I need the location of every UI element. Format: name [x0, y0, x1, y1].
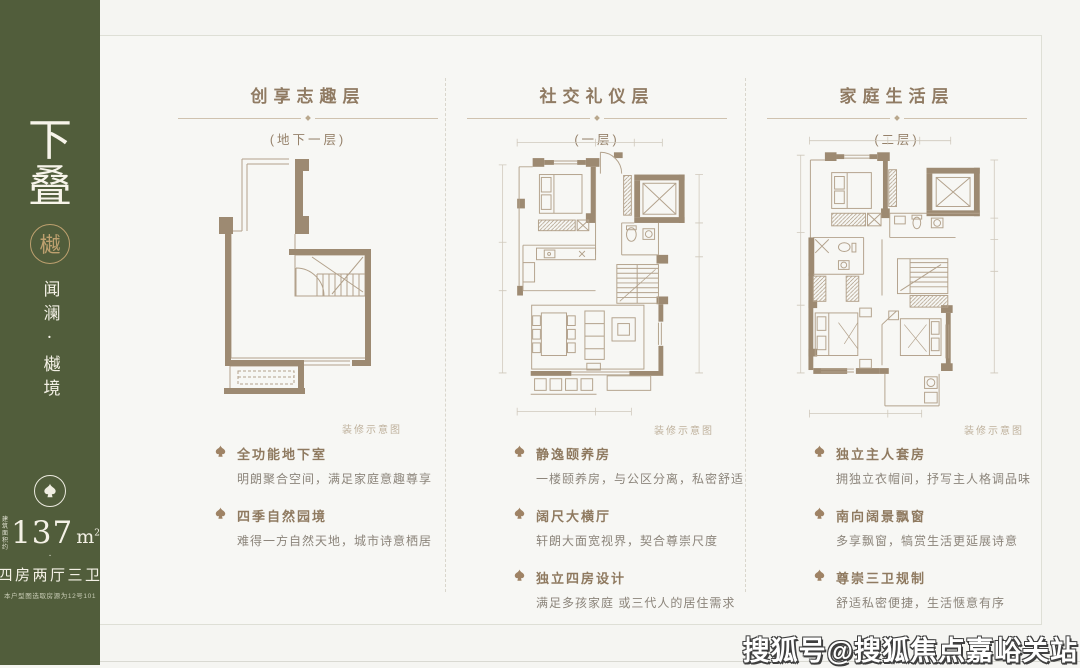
column3-title: 家庭生活层	[767, 82, 1027, 107]
leaf-bullet-icon	[812, 568, 827, 583]
floorplan-level2	[792, 131, 1032, 431]
feature-item: 全功能地下室 明朗聚合空间，满足家庭意趣尊享	[213, 444, 453, 487]
feature-title: 独立主人套房	[836, 444, 1052, 463]
feature-item: 尊崇三卫规制 舒适私密便捷，生活惬意有序	[812, 568, 1052, 611]
area-figure: 建筑 面积约 137 m2	[0, 515, 100, 551]
feature-desc: 舒适私密便捷，生活惬意有序	[836, 594, 1052, 611]
area-prefix: 建筑 面积约	[0, 516, 9, 551]
feature-item: 静逸颐养房 一楼颐养房，与公区分离，私密舒适	[512, 444, 752, 487]
poster-root: 下 叠 樾 闻澜·樾境 建筑 面积约 137 m2 · 四房两厅三卫 本户型图选…	[0, 0, 1080, 665]
leaf-bullet-icon	[812, 444, 827, 459]
feature-item: 独立主人套房 拥独立衣帽间，抒写主人格调品味	[812, 444, 1052, 487]
header-divider	[467, 116, 727, 120]
plan3-caption: 装修示意图	[914, 422, 1024, 437]
feature-desc: 轩朗大面宽视界，契合尊崇尺度	[536, 532, 752, 549]
unit-source-note: 本户型图选取房源为12号101	[4, 590, 96, 600]
floorplan-basement	[192, 136, 432, 436]
product-title-char-2: 叠	[28, 164, 72, 210]
feature-item: 独立四房设计 满足多孩家庭 或三代人的居住需求	[512, 568, 752, 611]
feature-desc: 满足多孩家庭 或三代人的居住需求	[536, 594, 752, 611]
sidebar: 下 叠 樾 闻澜·樾境 建筑 面积约 137 m2 · 四房两厅三卫 本户型图选…	[0, 0, 100, 665]
brand-name: 闻澜·樾境	[38, 280, 63, 403]
leaf-bullet-icon	[213, 444, 228, 459]
feature-title: 阔尺大横厅	[536, 506, 752, 525]
column3-bullets: 独立主人套房 拥独立衣帽间，抒写主人格调品味 南向阔景飘窗 多享飘窗，犒赏生活更…	[812, 444, 1052, 630]
feature-title: 四季自然园境	[237, 506, 453, 525]
header-divider	[178, 116, 438, 120]
header-divider	[767, 116, 1027, 120]
feature-title: 尊崇三卫规制	[836, 568, 1052, 587]
leaf-bullet-icon	[512, 506, 527, 521]
feature-title: 独立四房设计	[536, 568, 752, 587]
brand-seal-icon: 樾	[30, 224, 70, 264]
separator-dot: ·	[48, 552, 51, 560]
watermark-text: 搜狐号@搜狐焦点嘉峪关站	[743, 629, 1078, 668]
leaf-bullet-icon	[512, 444, 527, 459]
room-layout-text: 四房两厅三卫	[0, 564, 103, 585]
leaf-icon	[41, 482, 59, 500]
feature-item: 四季自然园境 难得一方自然天地，城市诗意栖居	[213, 506, 453, 549]
column2-title: 社交礼仪层	[467, 82, 727, 107]
leaf-bullet-icon	[512, 568, 527, 583]
leaf-bullet-icon	[812, 506, 827, 521]
leaf-bullet-icon	[213, 506, 228, 521]
column1-bullets: 全功能地下室 明朗聚合空间，满足家庭意趣尊享 四季自然园境 难得一方自然天地，城…	[213, 444, 453, 568]
feature-item: 阔尺大横厅 轩朗大面宽视界，契合尊崇尺度	[512, 506, 752, 549]
plan2-caption: 装修示意图	[604, 422, 714, 437]
feature-desc: 一楼颐养房，与公区分离，私密舒适	[536, 470, 752, 487]
area-value: 137	[11, 515, 73, 551]
feature-desc: 难得一方自然天地，城市诗意栖居	[237, 532, 453, 549]
product-title: 下 叠	[28, 118, 72, 210]
feature-desc: 多享飘窗，犒赏生活更延展诗意	[836, 532, 1052, 549]
column1-title: 创享志趣层	[178, 82, 438, 107]
feature-title: 静逸颐养房	[536, 444, 752, 463]
feature-item: 南向阔景飘窗 多享飘窗，犒赏生活更延展诗意	[812, 506, 1052, 549]
product-title-char-1: 下	[28, 118, 72, 164]
feature-title: 南向阔景飘窗	[836, 506, 1052, 525]
floorplan-level1	[492, 131, 732, 431]
feature-title: 全功能地下室	[237, 444, 453, 463]
seal-character: 樾	[40, 229, 61, 259]
plan1-caption: 装修示意图	[292, 421, 402, 436]
feature-desc: 拥独立衣帽间，抒写主人格调品味	[836, 470, 1052, 487]
area-unit: m2	[76, 526, 100, 548]
column2-bullets: 静逸颐养房 一楼颐养房，与公区分离，私密舒适 阔尺大横厅 轩朗大面宽视界，契合尊…	[512, 444, 752, 630]
leaf-badge-icon	[34, 475, 66, 507]
feature-desc: 明朗聚合空间，满足家庭意趣尊享	[237, 470, 453, 487]
